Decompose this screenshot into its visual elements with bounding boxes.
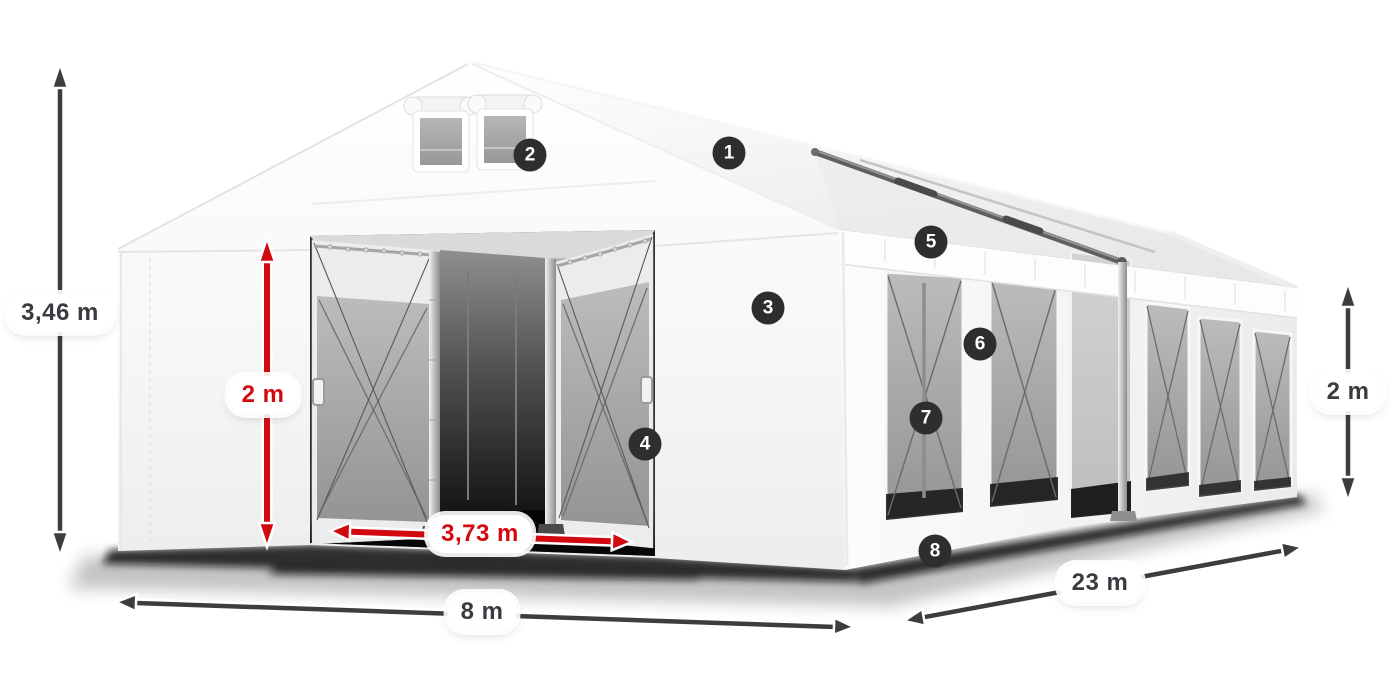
callout-badge-1: 1 [713, 137, 746, 170]
callout-badge-2: 2 [514, 139, 547, 172]
tent-illustration [0, 0, 1400, 700]
door-handle-right [641, 377, 652, 403]
tent-entrance [310, 230, 655, 556]
callout-badge-7: 7 [910, 402, 943, 435]
callout-badge-6: 6 [964, 328, 997, 361]
callout-badge-5: 5 [915, 226, 948, 259]
entrance-door-right [537, 234, 653, 548]
dimension-label-gable-width: 8 m [448, 593, 517, 631]
door-handle-left [313, 379, 324, 405]
tent-dimension-diagram: 3,46 m 2 m 3,73 m 8 m 23 m 2 m 1 2 3 4 5… [0, 0, 1400, 700]
dimension-label-side-wall-height: 2 m [1314, 373, 1383, 411]
dimension-label-entrance-width: 3,73 m [428, 515, 532, 553]
callout-badge-4: 4 [629, 428, 662, 461]
callout-badge-3: 3 [752, 292, 785, 325]
dimension-label-entrance-height: 2 m [229, 376, 298, 414]
callout-badge-8: 8 [919, 535, 952, 568]
dimension-label-total-height: 3,46 m [8, 294, 112, 332]
entrance-door-left [312, 240, 449, 544]
dimension-label-side-length: 23 m [1059, 564, 1142, 602]
